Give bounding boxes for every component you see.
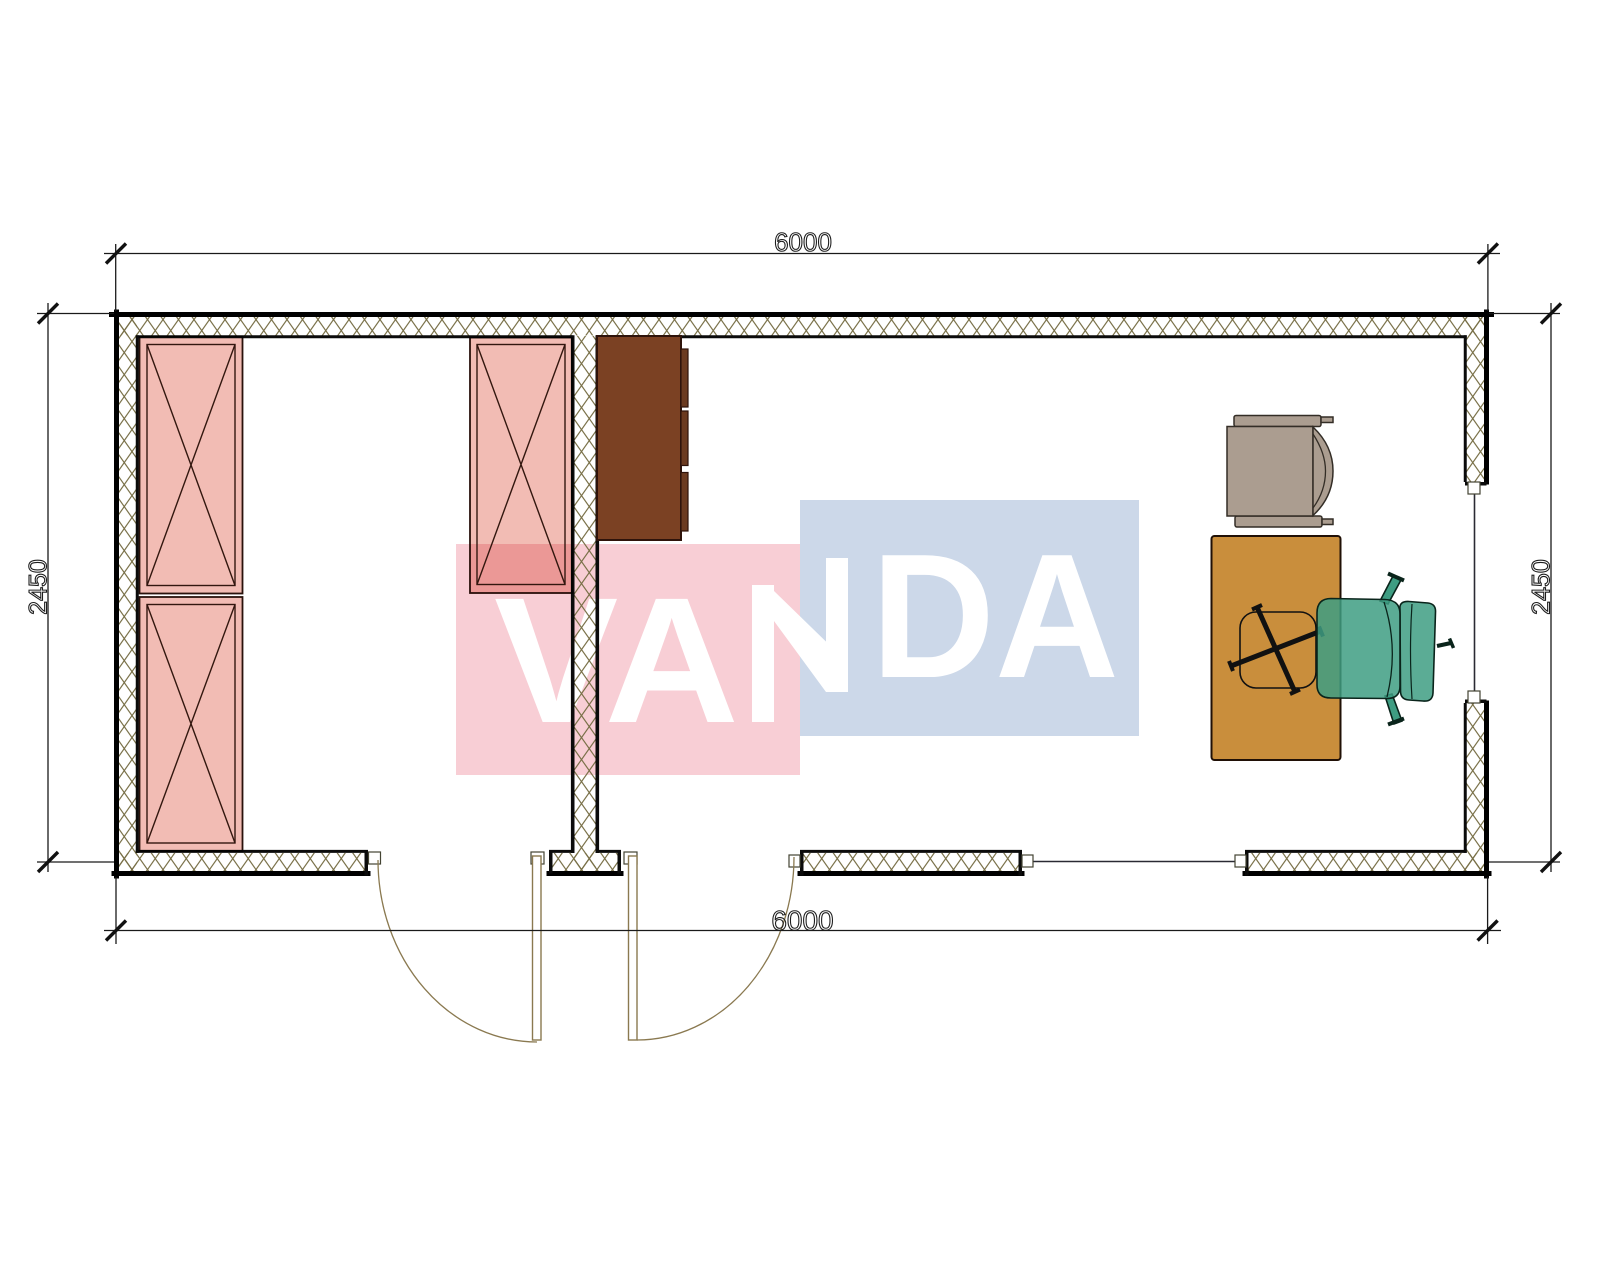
svg-text:6000: 6000: [774, 227, 832, 257]
svg-text:2450: 2450: [25, 559, 53, 615]
svg-text:6000: 6000: [771, 905, 833, 936]
svg-text:DA: DA: [871, 517, 1119, 715]
svg-text:2450: 2450: [1528, 559, 1556, 615]
